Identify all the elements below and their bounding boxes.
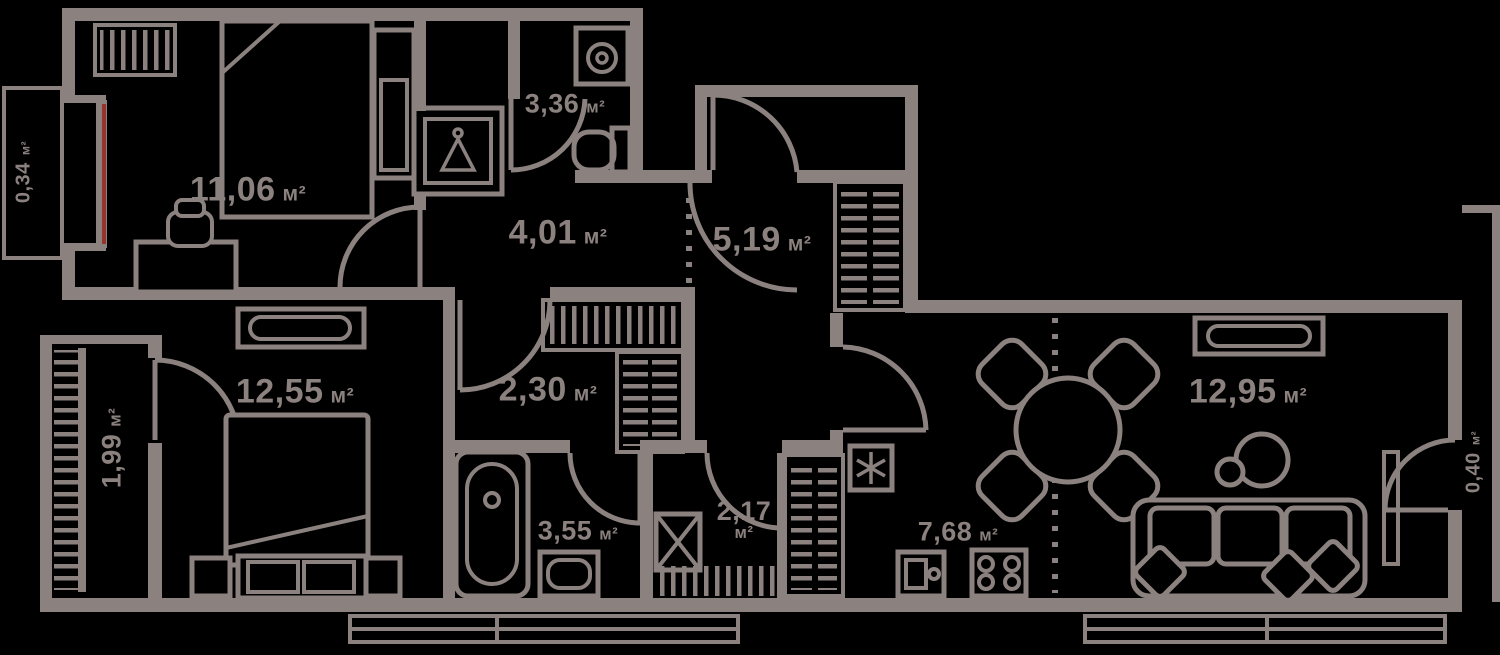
washing-machine-icon xyxy=(576,28,628,84)
room-area-unit: м² xyxy=(788,233,812,257)
room-label-bathroom-bottom: 3,55м² xyxy=(538,516,619,547)
floor-lamp-icon xyxy=(1217,434,1288,486)
room-label-hallway: 4,01м² xyxy=(509,214,608,253)
stove-icon xyxy=(972,550,1026,596)
room-label-bedroom-top: 11,06м² xyxy=(190,171,306,210)
room-label-living-room: 12,95м² xyxy=(1189,373,1307,412)
service-shaft xyxy=(785,455,843,596)
dining-table xyxy=(1016,378,1120,482)
room-area-value: 3,55 xyxy=(538,516,593,547)
washer-x-icon xyxy=(656,514,700,570)
console-table-living xyxy=(1195,318,1323,354)
room-label-laundry: 2,17м² xyxy=(717,498,772,542)
room-area-unit: м² xyxy=(1283,385,1307,409)
room-label-bathroom-top: 3,36м² xyxy=(525,89,606,120)
bed xyxy=(226,415,368,565)
room-area-value: 12,55 xyxy=(236,373,324,412)
room-area-value: 12,95 xyxy=(1189,373,1277,412)
room-area-value: 5,19 xyxy=(713,221,781,260)
door-arc-kitchen xyxy=(843,347,926,430)
bedside-cabinet xyxy=(374,30,414,178)
room-area-value: 2,30 xyxy=(499,371,567,410)
window-bottom-right xyxy=(1085,616,1445,642)
wardrobe-hanger-icon xyxy=(414,108,502,194)
room-label-bedroom-left: 12,55м² xyxy=(236,373,354,412)
kitchen-sink-icon xyxy=(898,552,944,596)
room-area-value: 3,36 xyxy=(525,89,580,120)
fridge-snowflake-icon xyxy=(850,446,892,490)
room-area-value: 0,40 xyxy=(1463,452,1486,493)
room-area-unit: м² xyxy=(1469,431,1483,445)
room-area-value: 1,99 xyxy=(97,434,128,489)
room-label-balcony-right: 0,40м² xyxy=(1463,431,1486,493)
room-area-unit: м² xyxy=(979,526,998,546)
room-label-balcony-top-left: 0,34м² xyxy=(13,141,36,203)
bathtub-icon xyxy=(456,452,528,596)
room-label-kitchen: 7,68м² xyxy=(918,517,999,548)
floor-plan-svg xyxy=(0,0,1500,655)
room-label-corridor: 2,30м² xyxy=(499,371,598,410)
toilet-icon xyxy=(574,128,630,172)
room-area-unit: м² xyxy=(599,525,618,545)
red-window-line xyxy=(102,104,106,244)
room-area-unit: м² xyxy=(584,226,608,250)
sink-icon xyxy=(540,552,598,596)
bench-dresser xyxy=(192,556,400,598)
room-area-value: 0,34 xyxy=(13,162,36,203)
room-area-unit: м² xyxy=(283,183,307,207)
room-area-unit: м² xyxy=(574,383,598,407)
door-arc-bathroom-bottom xyxy=(570,453,640,523)
room-area-value: 4,01 xyxy=(509,214,577,253)
sofa xyxy=(1133,500,1365,603)
room-area-unit: м² xyxy=(586,98,605,118)
room-area-value: 11,06 xyxy=(190,171,276,210)
radiator-icon xyxy=(95,25,175,75)
closet-shelves-corridor-bottom xyxy=(617,352,683,452)
room-area-unit: м² xyxy=(19,141,33,155)
room-area-unit: м² xyxy=(106,408,126,427)
room-area-value: 2,17 xyxy=(717,498,772,525)
window-bottom-left xyxy=(350,616,738,642)
console-table-bedroom xyxy=(238,309,364,347)
desk xyxy=(136,242,236,292)
balcony-railing-left xyxy=(54,350,78,590)
closet-shelves-entry xyxy=(835,182,905,310)
floor-plan: 0,34м² 11,06м² 3,36м² 4,01м² 5,19м² 12,5… xyxy=(0,0,1500,655)
room-area-unit: м² xyxy=(330,385,354,409)
room-label-entrance-hall: 5,19м² xyxy=(713,221,812,260)
room-area-unit: м² xyxy=(735,525,754,542)
closet-shelves-corridor-top xyxy=(543,300,683,350)
room-area-value: 7,68 xyxy=(918,517,973,548)
room-label-balcony-bottom-left: 1,99м² xyxy=(97,408,128,489)
